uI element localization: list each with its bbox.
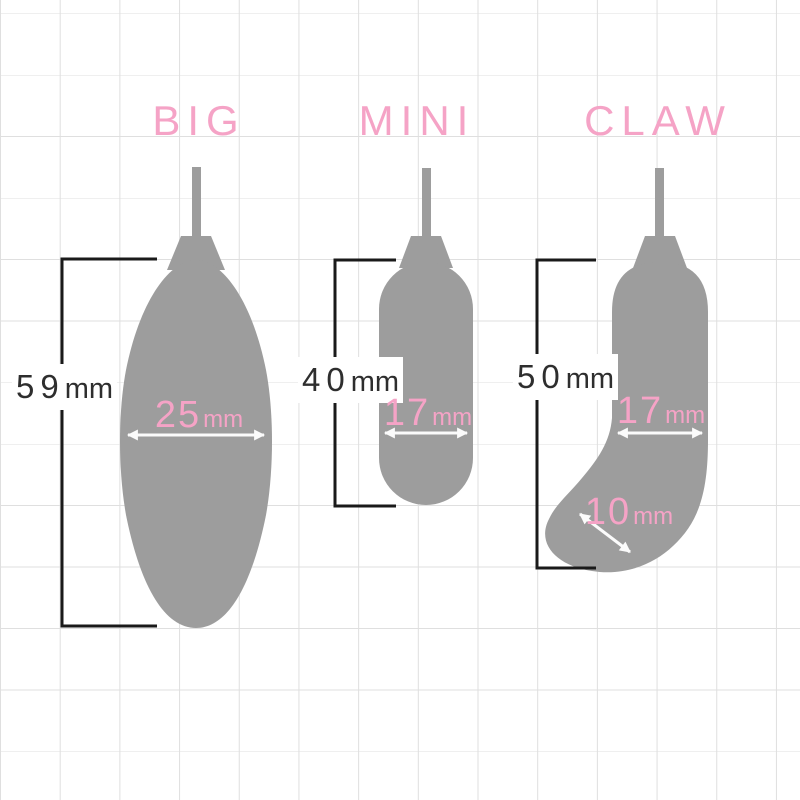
mini-length-value: 40	[302, 363, 351, 396]
claw-length-value: 50	[517, 360, 566, 393]
big-length-unit: mm	[65, 375, 113, 404]
mini-silhouette-group	[379, 168, 473, 505]
claw-cord	[655, 168, 664, 240]
mini-width-label: 17mm	[384, 394, 472, 432]
big-width-label: 25mm	[155, 396, 243, 434]
claw-length-label: 50mm	[513, 354, 618, 400]
big-length-label: 59mm	[12, 364, 117, 410]
mini-cord	[422, 168, 431, 240]
big-width-unit: mm	[203, 408, 243, 432]
claw-width-unit: mm	[665, 404, 705, 428]
big-cord	[192, 167, 201, 240]
claw-tip-width-unit: mm	[633, 505, 673, 529]
product-title-big: BIG	[152, 100, 245, 142]
product-title-mini: MINI	[359, 100, 476, 142]
claw-tip-width-value: 10	[585, 493, 631, 531]
big-body	[120, 260, 272, 628]
mini-width-value: 17	[384, 394, 430, 432]
big-length-value: 59	[16, 370, 65, 403]
mini-width-unit: mm	[432, 406, 472, 430]
big-width-value: 25	[155, 396, 201, 434]
claw-length-unit: mm	[566, 365, 614, 394]
claw-width-label: 17mm	[617, 392, 705, 430]
claw-tip-width-label: 10mm	[585, 493, 673, 531]
claw-width-value: 17	[617, 392, 663, 430]
product-title-claw: CLAW	[584, 100, 732, 142]
